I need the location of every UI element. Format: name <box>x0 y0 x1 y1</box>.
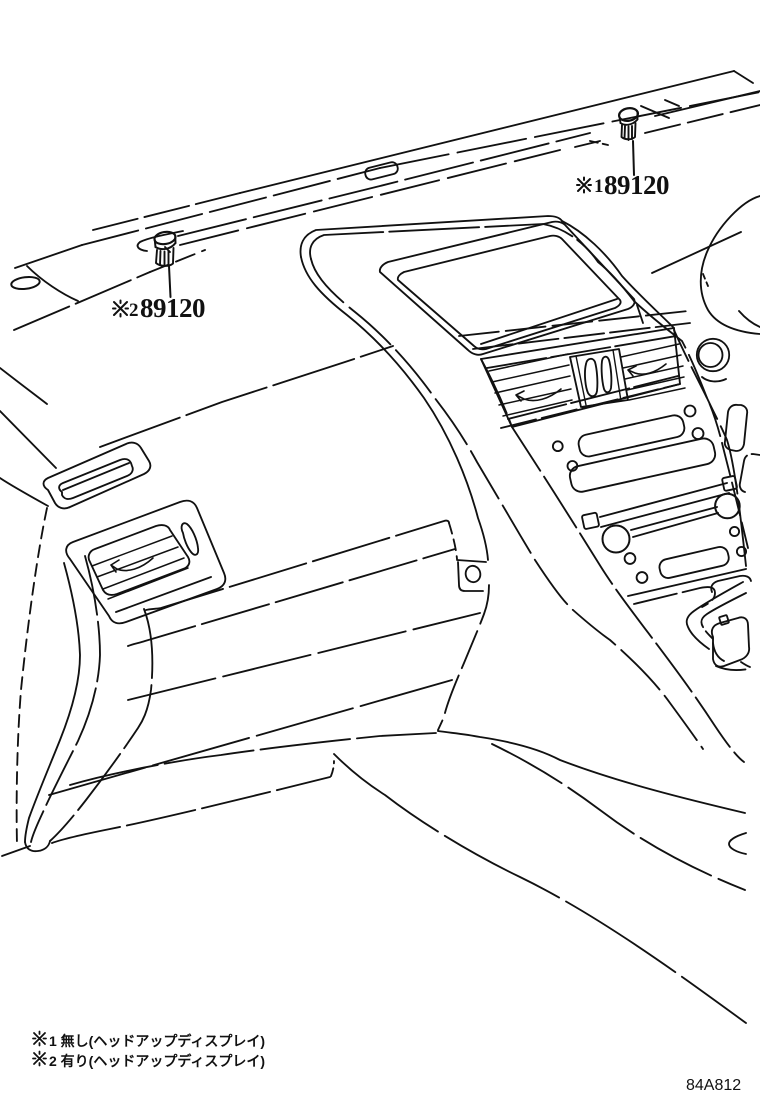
svg-text:1: 1 <box>594 176 604 197</box>
svg-text:2: 2 <box>129 300 139 321</box>
svg-text:89120: 89120 <box>604 170 669 200</box>
svg-text:89120: 89120 <box>140 293 205 323</box>
